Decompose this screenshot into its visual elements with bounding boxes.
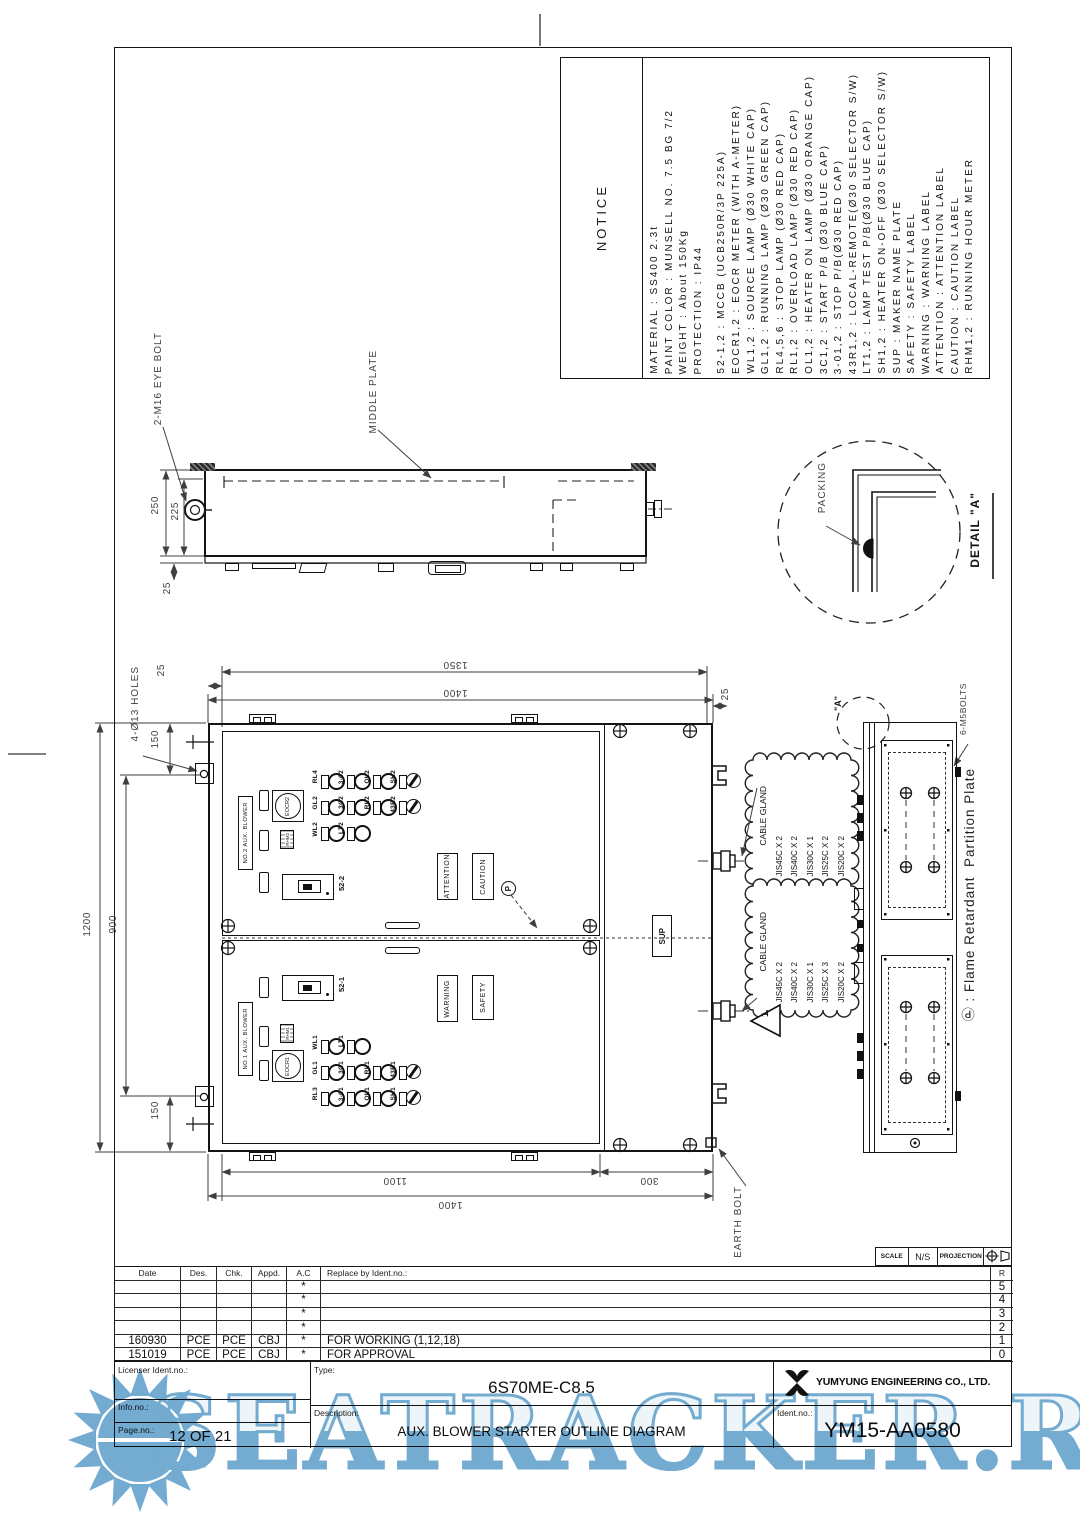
breaker-dot	[326, 993, 329, 996]
notice-line: PAINT COLOR : MUNSELL NO. 7.5 BG 7/2	[663, 109, 678, 374]
lamp-label: LT2	[338, 822, 345, 834]
rev-cell	[115, 1294, 181, 1308]
rhm1-label: RHM1	[285, 1027, 290, 1040]
warning-text: WARNING	[444, 980, 451, 1018]
scale-label: SCALE	[881, 1253, 903, 1260]
rev-cell: CBJ	[252, 1335, 287, 1349]
lamp-label: OL2	[364, 770, 371, 784]
eocr2-dial: EOCR2	[275, 793, 301, 819]
cabinet-foot	[620, 563, 634, 571]
notice-line: RHM1,2 : RUNNING HOUR METER	[963, 158, 978, 374]
lamp-label: RL4	[312, 770, 319, 783]
rev-cell: CBJ	[252, 1348, 287, 1362]
rev-index: 3	[991, 1308, 1013, 1322]
notice-line: MATERIAL : SS400 2.3t	[648, 225, 663, 374]
eocr2-label: EOCR2	[285, 797, 291, 816]
door-hinge	[259, 1026, 269, 1047]
mounting-tab	[195, 1086, 214, 1107]
eocr1-label: EOCR1	[285, 1057, 291, 1076]
page-value: 12 OF 21	[169, 1428, 232, 1445]
gland-size: JIS25C X 2	[821, 836, 830, 876]
rev-cell	[217, 1281, 252, 1295]
base-part	[252, 563, 296, 569]
nameplate-no1: NO.1 AUX. BLOWER	[238, 1002, 253, 1076]
lamp-label: GL1	[312, 1061, 319, 1075]
lamp-label: 3-01	[338, 1087, 345, 1101]
rev-cell	[252, 1281, 287, 1295]
packing-label: PACKING	[817, 462, 828, 513]
mccb-52-1[interactable]	[282, 975, 334, 1001]
rev-cell: PCE	[217, 1348, 252, 1362]
cable-gland-note-lower: CABLE GLAND JIS45C X 2 JIS40C X 2 JIS30C…	[758, 892, 846, 1002]
rev-header: Chk.	[217, 1267, 252, 1281]
notice-line: 3-01,2 : STOP P/B(Ø30 RED CAP)	[832, 159, 847, 374]
notice-line: WL1,2 : SOURCE LAMP (Ø30 WHITE CAP)	[745, 107, 760, 374]
safety-text: SAFETY	[480, 982, 487, 1013]
lamp-label: SH2	[390, 770, 397, 784]
base-part	[299, 563, 328, 573]
push-button[interactable]: LT2	[338, 824, 372, 844]
sup-nameplate: SUP	[652, 915, 672, 957]
rev-cell: PCE	[217, 1335, 252, 1349]
rev-cell: *	[287, 1308, 321, 1322]
attention-text: ATTENTION	[444, 854, 451, 899]
side-gland-box	[854, 888, 864, 910]
base-bracket	[428, 561, 466, 575]
mounting-tab	[195, 763, 214, 784]
mounting-clamp	[249, 1152, 276, 1161]
partition-plate-upper-dashed	[888, 752, 946, 908]
rev-cell	[321, 1308, 991, 1322]
scale-value-cell: N/S	[909, 1248, 939, 1265]
holes-note: 4-Ø13 HOLES	[130, 666, 141, 741]
rev-header: Date	[115, 1267, 181, 1281]
gland-size: JIS30C X 1	[806, 962, 815, 1002]
eocr1-meter: EOCR1	[272, 1050, 304, 1082]
side-wall-line	[869, 723, 870, 1152]
dim-25-left: 25	[156, 664, 167, 676]
rev-cell	[181, 1321, 217, 1335]
p-mark: P	[504, 886, 513, 891]
lamp-label: 3-02	[338, 770, 345, 784]
cable-gland-title: CABLE GLAND	[758, 912, 768, 972]
triangle-ref: 1	[760, 1012, 770, 1017]
caution-plate: CAUTION	[472, 853, 494, 900]
partition-note: Ⓟ : Flame Retardant Partition Plate	[960, 768, 980, 1021]
lower-door	[222, 940, 600, 1144]
rev-cell	[321, 1321, 991, 1335]
dim-900: 900	[108, 915, 119, 934]
detail-a-title: DETAIL "A"	[968, 492, 982, 568]
side-gland-box	[854, 962, 864, 984]
rev-cell	[217, 1308, 252, 1322]
mounting-clamp	[511, 714, 538, 723]
p-mark-circle: P	[501, 881, 516, 896]
partition-plate-lower-dashed	[888, 967, 946, 1123]
side-gland-tab	[857, 1033, 863, 1043]
lamp-label: GL2	[312, 796, 319, 810]
mccb-52-2[interactable]	[282, 874, 334, 900]
side-wall-line	[874, 723, 875, 1152]
rev-cell	[181, 1294, 217, 1308]
rev-cell	[321, 1294, 991, 1308]
notice-title: NOTICE	[594, 184, 609, 251]
cable-gland-note-upper: CABLE GLAND JIS45C X 2 JIS40C X 2 JIS30C…	[758, 766, 846, 876]
nameplate-text: NO.2 AUX. BLOWER	[243, 802, 249, 863]
cabinet-foot	[560, 563, 573, 571]
notice-line: ATTENTION : ATTENTION LABEL	[934, 166, 949, 374]
cable-gland-title: CABLE GLAND	[758, 786, 768, 846]
rev-cell: *	[287, 1321, 321, 1335]
dim-1400-bottom: 1400	[438, 1199, 463, 1210]
nameplate-text: NO.1 AUX. BLOWER	[243, 1008, 249, 1069]
rev-cell	[115, 1308, 181, 1322]
lamp-label: OL1	[364, 1087, 371, 1101]
lamp-label: 3C1	[338, 1061, 345, 1074]
rev-cell	[217, 1294, 252, 1308]
company-logo	[782, 1368, 812, 1398]
dim-1400-top: 1400	[443, 687, 468, 698]
rhm2-meter: RHM2	[280, 830, 294, 849]
dim-250: 250	[150, 496, 161, 515]
notice-line: GL1,2 : RUNNING LAMP (Ø30 GREEN CAP)	[759, 100, 774, 374]
notice-lines: MATERIAL : SS400 2.3t PAINT COLOR : MUNS…	[648, 62, 986, 374]
notice-line: SH1,2 : HEATER ON-OFF (Ø30 SELECTOR S/W)	[876, 70, 891, 374]
rev-header: Replace by Ident.no.:	[321, 1267, 991, 1281]
door-hinge	[259, 977, 269, 998]
dim-225: 225	[170, 502, 181, 521]
breaker-dot	[326, 892, 329, 895]
eocr1-dial: EOCR1	[275, 1053, 301, 1079]
cabinet-foot	[378, 563, 394, 572]
notice-line: CAUTION : CAUTION LABEL	[949, 196, 964, 374]
rev-cell: PCE	[181, 1348, 217, 1362]
rev-cell	[181, 1308, 217, 1322]
gland-size: JIS45C X 2	[775, 836, 784, 876]
side-gland-tab	[857, 1051, 863, 1061]
info-label: Info.no.:	[118, 1402, 149, 1412]
lamp-label: 3C2	[338, 796, 345, 809]
label-52-1: 52-1	[337, 977, 346, 992]
selector-switch[interactable]: SH2	[390, 772, 424, 792]
licenser-label: Licenser Ident.no.:	[118, 1365, 188, 1375]
description-label: Description:	[314, 1408, 359, 1418]
door-handle[interactable]	[385, 922, 420, 929]
rev-cell: *	[287, 1335, 321, 1349]
lamp-label: RL3	[312, 1087, 319, 1100]
middle-plate-label: MIDDLE PLATE	[368, 350, 379, 434]
door-hinge	[259, 790, 269, 811]
push-button[interactable]: LT1	[338, 1037, 372, 1057]
breaker-toggle[interactable]	[303, 884, 312, 890]
selector-switch[interactable]: 43R2	[390, 798, 424, 818]
dim-25-right: 25	[720, 688, 731, 700]
rev-cell: *	[287, 1294, 321, 1308]
side-gland-tab	[857, 920, 863, 928]
notice-line: WEIGHT : About 150Kg	[677, 229, 692, 374]
rev-cell	[252, 1294, 287, 1308]
dim-25-topview: 25	[162, 582, 173, 594]
rev-index: R	[991, 1267, 1013, 1281]
scale-label-cell: SCALE	[876, 1248, 909, 1265]
notice-line: 43R1,2 : LOCAL-REMOTE(Ø30 SELECTOR S/W)	[847, 73, 862, 374]
notice-line: 52-1,2 : MCCB (UCB250R/3P 225A)	[715, 150, 730, 374]
dim-300: 300	[640, 1175, 659, 1186]
description-value: AUX. BLOWER STARTER OUTLINE DIAGRAM	[310, 1424, 773, 1439]
ident-value: YM15-AA0580	[773, 1419, 1012, 1443]
notice-line: RL1,2 : OVERLOAD LAMP (Ø30 RED CAP)	[788, 108, 803, 374]
eocr2-meter: EOCR2	[272, 790, 304, 822]
gland-size: JIS45C X 2	[775, 962, 784, 1002]
eye-bolt-label: 2-M16 EYE BOLT	[153, 332, 164, 425]
projection-symbol-cell	[984, 1248, 1011, 1265]
gland-size: JIS40C X 2	[790, 962, 799, 1002]
rev-cell: *	[287, 1281, 321, 1295]
notice-line: WARNING : WARNING LABEL	[920, 190, 935, 374]
scale-strip: SCALE N/S PROJECTION	[875, 1247, 1012, 1266]
selector-switch[interactable]: SH1	[390, 1089, 424, 1109]
rev-cell: 160930	[115, 1335, 181, 1349]
rhm2-label: RHM2	[285, 833, 290, 846]
lifting-lug	[631, 463, 656, 471]
flange-line	[604, 724, 605, 1151]
lifting-lug	[190, 463, 215, 471]
dim-1200: 1200	[82, 912, 93, 937]
rev-cell: FOR WORKING (1,12,18)	[321, 1335, 991, 1349]
projection-label: PROJECTION	[940, 1253, 982, 1260]
rev-header: Appd.	[252, 1267, 287, 1281]
notice-line: EOCR1,2 : EOCR METER (WITH A-METER)	[730, 104, 745, 374]
notice-line: 3C1,2 : START P/B (Ø30 BLUE CAP)	[818, 144, 833, 374]
notice-line: LT1,2 : LAMP TEST P/B(Ø30 BLUE CAP)	[861, 119, 876, 374]
top-view-gland	[646, 502, 654, 516]
bolts-note: 6-M5BOLTS	[958, 683, 968, 735]
gland-size: JIS40C X 2	[790, 836, 799, 876]
scale-value: N/S	[915, 1252, 930, 1262]
gland-size: JIS25C X 3	[821, 962, 830, 1002]
side-gland-tab	[857, 813, 863, 823]
dim-150-top: 150	[150, 730, 161, 749]
dim-1350: 1350	[443, 659, 468, 670]
side-gland-tab	[857, 1069, 863, 1079]
sup-text: SUP	[658, 928, 667, 944]
rev-cell: *	[287, 1348, 321, 1362]
rev-cell	[252, 1308, 287, 1322]
rev-cell: FOR APPROVAL	[321, 1348, 991, 1362]
rev-cell	[115, 1281, 181, 1295]
lamp-label: SH1	[390, 1087, 397, 1101]
rev-cell	[252, 1321, 287, 1335]
nameplate-no2: NO.2 AUX. BLOWER	[238, 796, 253, 870]
label-52-2: 52-2	[337, 876, 346, 891]
dim-1100: 1100	[383, 1175, 407, 1186]
notice-title-cell: NOTICE	[561, 58, 643, 378]
rev-header: A.C	[287, 1267, 321, 1281]
notice-line: OL1,2 : HEATER ON LAMP (Ø30 ORANGE CAP)	[803, 75, 818, 374]
gland-size: JIS20C X 2	[837, 836, 846, 876]
notice-line: RL4,5,6 : STOP LAMP (Ø30 RED CAP)	[774, 132, 789, 374]
notice-line: SUP : MAKER NAME PLATE	[891, 200, 906, 374]
drawing-sheet: NOTICE MATERIAL : SS400 2.3t PAINT COLOR…	[0, 0, 1080, 1515]
upper-door	[222, 731, 600, 936]
rhm1-meter: RHM1	[280, 1024, 294, 1043]
lamp-label: LT1	[338, 1035, 345, 1047]
lamp-label: RL2	[364, 796, 371, 809]
lamp-lens	[354, 825, 371, 842]
door-hinge	[259, 1060, 269, 1081]
ident-label: Ident.no.:	[777, 1408, 812, 1418]
selector-switch[interactable]: 43R1	[390, 1063, 424, 1083]
side-gland-tab	[857, 831, 863, 841]
rev-index: 0	[991, 1348, 1013, 1362]
side-tab-right	[955, 1091, 961, 1101]
breaker-toggle[interactable]	[303, 985, 312, 991]
side-gland-tab	[857, 795, 863, 805]
a-ref-label: "A"	[833, 696, 843, 711]
company-name: YUMYUNG ENGINEERING CO., LTD.	[816, 1376, 990, 1388]
door-hinge	[259, 872, 269, 893]
rev-index: 2	[991, 1321, 1013, 1335]
revision-table: Date Des. Chk. Appd. A.C Replace by Iden…	[114, 1266, 1012, 1361]
lamp-lens	[354, 1038, 371, 1055]
rev-index: 1	[991, 1335, 1013, 1349]
side-tab-right	[955, 767, 961, 777]
lamp-label: 43R2	[390, 796, 397, 813]
earth-bolt-label: EARTH BOLT	[733, 1186, 744, 1258]
top-view-gland	[654, 500, 662, 518]
rev-cell: PCE	[181, 1335, 217, 1349]
rev-cell: 151019	[115, 1348, 181, 1362]
attention-plate: ATTENTION	[437, 853, 458, 900]
rev-header: Des.	[181, 1267, 217, 1281]
page-label: Page.no.:	[118, 1425, 154, 1435]
rev-cell	[115, 1321, 181, 1335]
notice-line: PROTECTION : IP44	[692, 246, 707, 374]
type-value: 6S70ME-C8.5	[310, 1378, 773, 1398]
rev-cell	[321, 1281, 991, 1295]
side-gland-tab	[857, 944, 863, 952]
gland-size: JIS30C X 1	[806, 836, 815, 876]
notice-line: SAFETY : SAFETY LABEL	[905, 212, 920, 374]
rev-index: 4	[991, 1294, 1013, 1308]
lamp-label: WL2	[312, 822, 319, 837]
type-label: Type:	[314, 1365, 335, 1375]
rev-cell	[181, 1281, 217, 1295]
rev-index: 5	[991, 1281, 1013, 1295]
gland-size: JIS20C X 2	[837, 962, 846, 1002]
caution-text: CAUTION	[480, 859, 487, 895]
rev-cell	[217, 1321, 252, 1335]
projection-label-cell: PROJECTION	[938, 1248, 984, 1265]
mounting-clamp	[511, 1152, 538, 1161]
title-block: Licenser Ident.no.: Info.no.: Page.no.: …	[114, 1361, 1012, 1447]
lamp-label: 43R1	[390, 1061, 397, 1078]
door-handle[interactable]	[385, 947, 420, 954]
cabinet-foot	[530, 563, 543, 571]
door-hinge	[259, 830, 269, 851]
safety-plate: SAFETY	[472, 975, 494, 1020]
warning-plate: WARNING	[437, 975, 458, 1022]
cabinet-foot	[225, 563, 239, 571]
lamp-label: RL1	[364, 1061, 371, 1074]
dim-150-bottom: 150	[150, 1101, 161, 1120]
lamp-label: WL1	[312, 1035, 319, 1050]
mounting-clamp	[249, 714, 276, 723]
